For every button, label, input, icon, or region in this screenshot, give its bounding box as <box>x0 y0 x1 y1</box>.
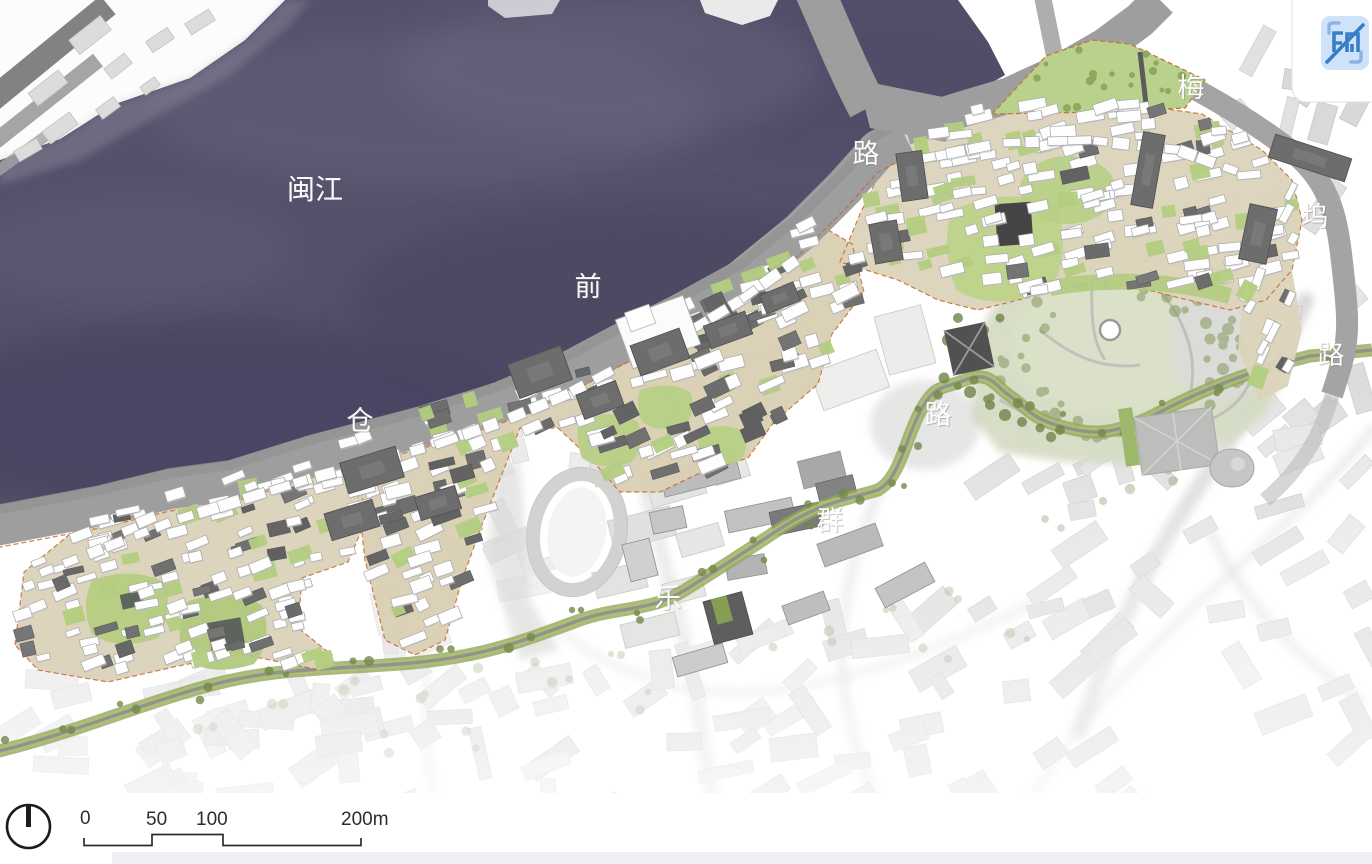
svg-text:乐: 乐 <box>655 584 682 614</box>
svg-text:路: 路 <box>853 139 880 169</box>
svg-text:0: 0 <box>80 808 91 829</box>
svg-text:群: 群 <box>817 506 844 536</box>
svg-text:仓: 仓 <box>347 406 374 436</box>
svg-text:坞: 坞 <box>1302 202 1329 232</box>
svg-text:梅: 梅 <box>1178 73 1205 103</box>
svg-text:50: 50 <box>146 809 167 830</box>
svg-text:前: 前 <box>575 272 602 302</box>
svg-text:闽江: 闽江 <box>287 174 343 205</box>
svg-text:路: 路 <box>1318 340 1345 370</box>
svg-text:100: 100 <box>196 809 228 830</box>
svg-text:200m: 200m <box>341 809 389 830</box>
svg-text:路: 路 <box>925 400 952 430</box>
